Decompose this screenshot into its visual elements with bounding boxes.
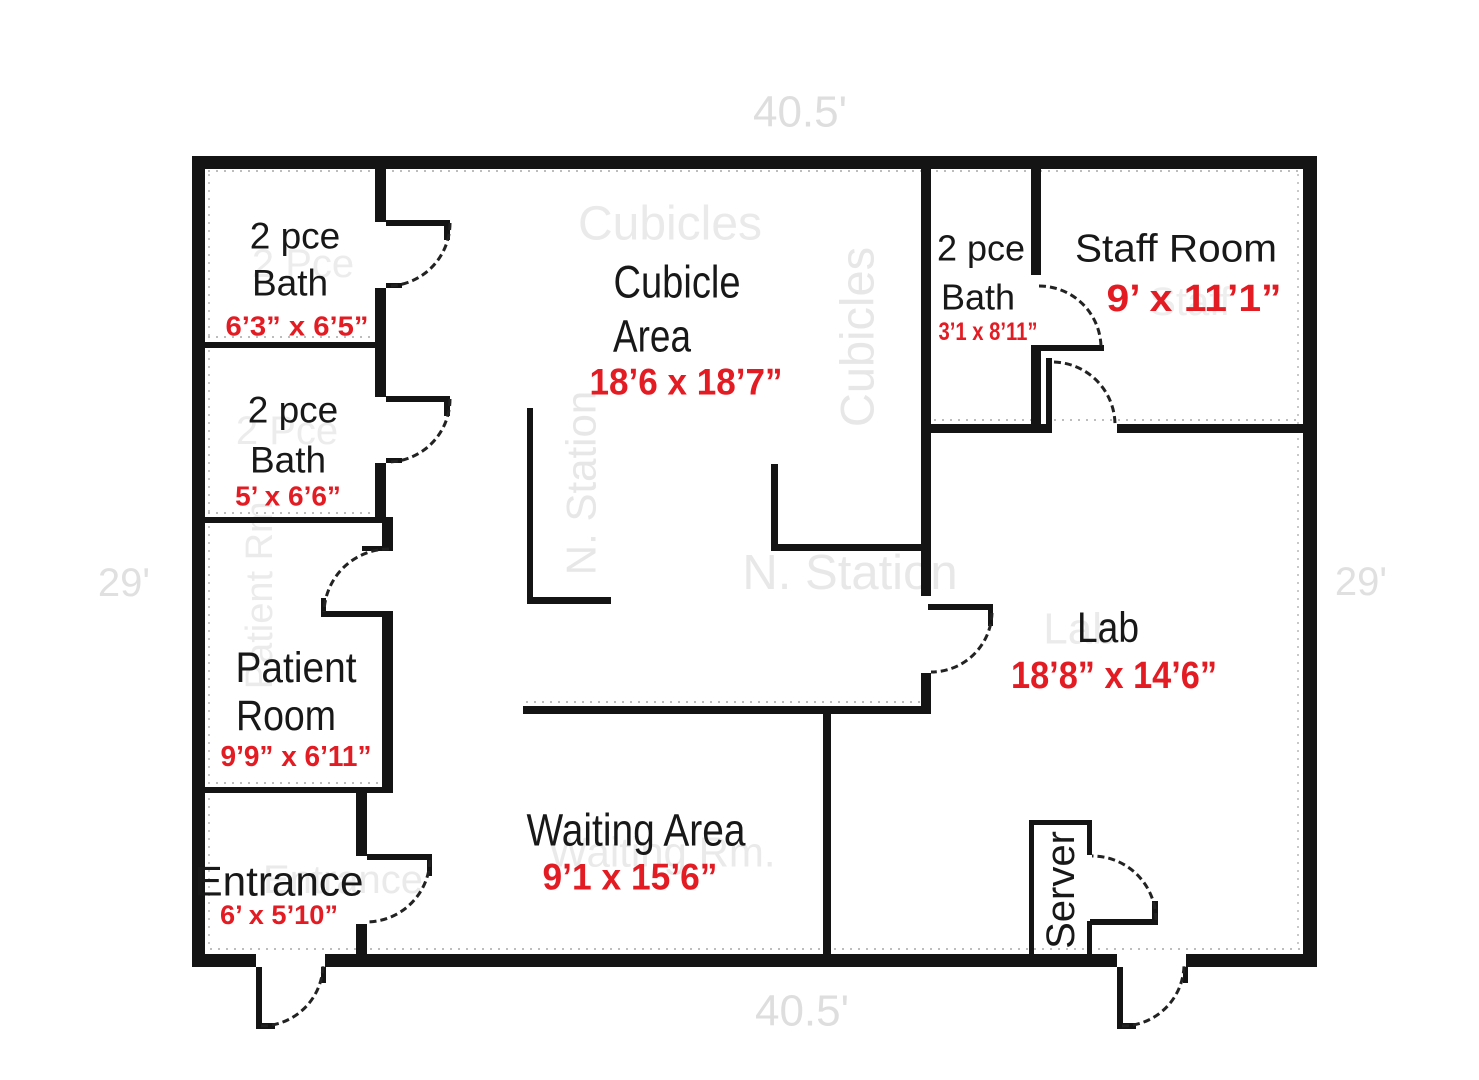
svg-text:2 pce: 2 pce: [248, 390, 339, 431]
svg-text:5’ x 6’6”: 5’ x 6’6”: [235, 481, 341, 512]
svg-text:Cubicle: Cubicle: [614, 257, 741, 308]
svg-text:40.5': 40.5': [753, 88, 847, 137]
svg-text:9’1 x 15’6”: 9’1 x 15’6”: [543, 857, 718, 898]
svg-text:9’ x 11’1”: 9’ x 11’1”: [1107, 278, 1282, 320]
svg-text:Staff Room: Staff Room: [1075, 228, 1277, 271]
svg-text:Waiting Area: Waiting Area: [527, 805, 747, 856]
svg-text:Bath: Bath: [252, 263, 328, 304]
svg-text:2 pce: 2 pce: [250, 216, 341, 257]
svg-text:Patient: Patient: [236, 644, 357, 692]
svg-text:18’6 x 18’7”: 18’6 x 18’7”: [590, 362, 783, 403]
svg-text:N. Station: N. Station: [558, 391, 605, 575]
svg-text:6’3” x 6’5”: 6’3” x 6’5”: [226, 311, 369, 342]
svg-text:9’9” x 6’11”: 9’9” x 6’11”: [221, 741, 372, 773]
svg-text:Cubicles: Cubicles: [831, 247, 884, 427]
svg-text:29': 29': [1335, 560, 1387, 604]
svg-text:18’8” x 14’6”: 18’8” x 14’6”: [1011, 655, 1217, 697]
svg-text:6’ x 5’10”: 6’ x 5’10”: [220, 900, 338, 930]
svg-text:40.5': 40.5': [755, 987, 849, 1036]
svg-text:29': 29': [98, 561, 150, 605]
svg-text:Bath: Bath: [941, 277, 1015, 318]
svg-text:3’1 x 8’11”: 3’1 x 8’11”: [939, 318, 1038, 346]
svg-text:Server: Server: [1039, 831, 1083, 949]
svg-text:Room: Room: [236, 692, 336, 740]
svg-text:Lab: Lab: [1077, 604, 1139, 652]
svg-text:Cubicles: Cubicles: [578, 198, 762, 251]
svg-text:Area: Area: [613, 311, 692, 362]
svg-text:Entrance: Entrance: [195, 858, 364, 905]
svg-text:2 pce: 2 pce: [937, 228, 1025, 269]
svg-text:Bath: Bath: [250, 440, 326, 481]
